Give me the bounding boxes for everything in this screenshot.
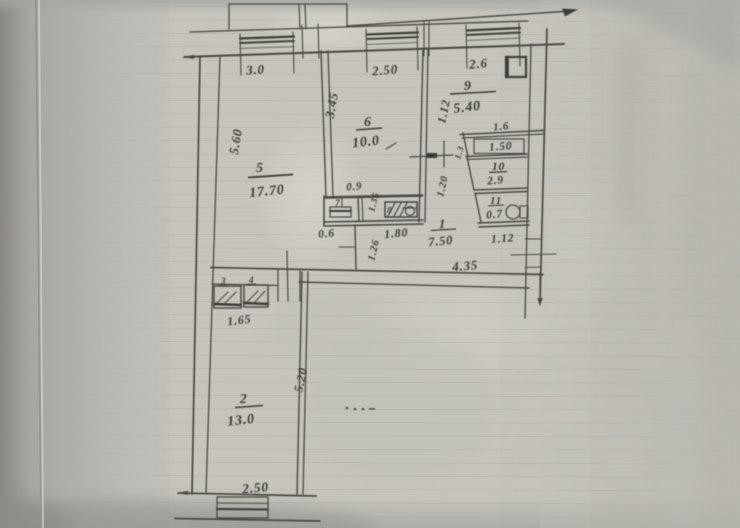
svg-text:1.50: 1.50 xyxy=(489,140,513,154)
svg-text:0.9: 0.9 xyxy=(346,180,363,193)
svg-text:1: 1 xyxy=(439,217,446,231)
svg-text:4: 4 xyxy=(248,275,254,285)
svg-text:0.7: 0.7 xyxy=(486,208,504,221)
svg-text:9: 9 xyxy=(464,79,472,94)
svg-text:3: 3 xyxy=(220,276,226,286)
svg-text:2.9: 2.9 xyxy=(486,174,505,188)
svg-text:1.6: 1.6 xyxy=(493,120,510,134)
svg-text:2.50: 2.50 xyxy=(241,479,270,496)
svg-text:0.6: 0.6 xyxy=(318,227,336,240)
svg-text:2.50: 2.50 xyxy=(370,61,398,78)
svg-text:2.6: 2.6 xyxy=(467,55,488,72)
svg-text:1.12: 1.12 xyxy=(491,232,515,246)
svg-text:4.35: 4.35 xyxy=(451,257,479,274)
svg-text:1.65: 1.65 xyxy=(226,312,252,329)
svg-text:7.50: 7.50 xyxy=(428,233,454,249)
svg-text:1.80: 1.80 xyxy=(384,225,409,241)
svg-text:5: 5 xyxy=(256,161,264,176)
svg-text:8: 8 xyxy=(387,206,393,216)
svg-text:6: 6 xyxy=(364,115,372,130)
svg-text:10.0: 10.0 xyxy=(351,133,380,151)
svg-text:2: 2 xyxy=(239,391,248,406)
svg-text:3.0: 3.0 xyxy=(245,61,266,77)
svg-text:7: 7 xyxy=(335,199,341,209)
svg-text:13.0: 13.0 xyxy=(227,412,256,430)
